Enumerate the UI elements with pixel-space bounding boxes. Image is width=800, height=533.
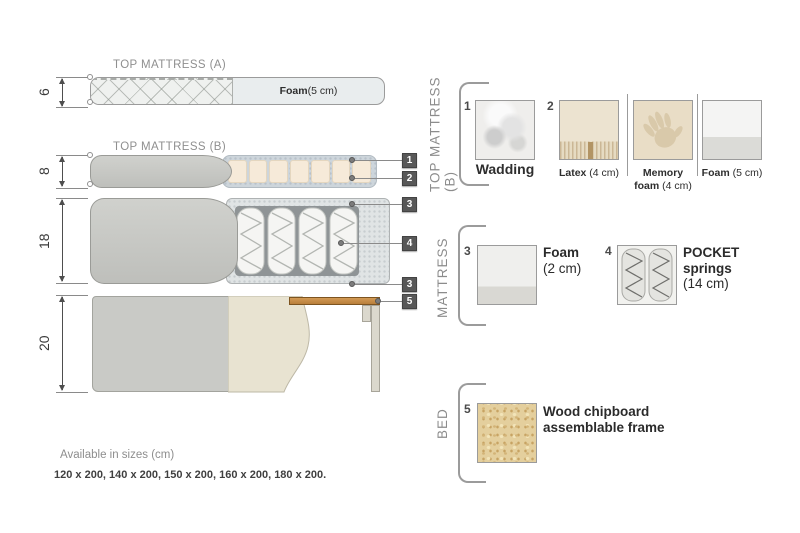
top-mattress-b-title: TOP MATTRESS (B) <box>113 141 226 153</box>
available-sizes-list: 120 x 200, 140 x 200, 150 x 200, 160 x 2… <box>54 469 326 481</box>
leader-line-3b <box>355 284 402 285</box>
mattress-construction-diagram: 6 8 18 20 TOP MATTRESS (A) Foam (5 cm) T… <box>0 0 800 533</box>
leader-line-4 <box>344 243 402 244</box>
latex-block <box>311 160 330 183</box>
pocket-springs-label: POCKET springs (14 cm) <box>683 245 739 292</box>
leader-line-2 <box>355 178 402 179</box>
corner-pin <box>87 99 93 105</box>
wood-chipboard-label: Wood chipboard assemblable frame <box>543 404 665 435</box>
leader-line-3 <box>355 204 402 205</box>
item-number-4: 4 <box>605 244 612 258</box>
item-number-3: 3 <box>464 244 471 258</box>
top-mattress-b-cover <box>90 155 232 188</box>
panel-section-label-bed: BED <box>434 394 451 454</box>
panel-section-label-top-mattress-b: TOP MATTRESS (B) <box>434 64 451 192</box>
foam-2cm-swatch <box>477 245 537 305</box>
latex-block <box>352 160 371 183</box>
handprint-graphic <box>634 101 692 159</box>
bed-frame-leg <box>371 305 380 392</box>
latex-swatch <box>559 100 619 160</box>
top-mattress-a-crosssection: Foam (5 cm) <box>90 77 385 105</box>
top-mattress-a-title: TOP MATTRESS (A) <box>113 59 226 71</box>
callout-badge-3: 3 <box>402 197 417 212</box>
leader-line-1 <box>355 160 402 161</box>
latex-block <box>269 160 288 183</box>
bed-skirt-fabric <box>228 296 312 393</box>
foam-2cm-label: Foam (2 cm) <box>543 245 581 276</box>
callout-badge-5: 5 <box>402 294 417 309</box>
mattress-cover <box>90 198 238 284</box>
dimension-arrow <box>62 157 63 186</box>
wood-chipboard-swatch <box>477 403 537 463</box>
dimension-tick <box>56 392 88 393</box>
wood-slat <box>289 297 380 305</box>
callout-badge-1: 1 <box>402 153 417 168</box>
panel-section-label-mattress: MATTRESS <box>434 230 451 325</box>
dimension-tick <box>56 107 88 108</box>
dimension-arrow <box>62 297 63 390</box>
leader-line-5 <box>381 301 402 302</box>
pocket-springs-swatch <box>617 245 677 305</box>
foam-5cm-swatch <box>702 100 762 160</box>
bed-frame-notch <box>362 305 371 322</box>
dimension-value: 8 <box>36 157 52 186</box>
dimension-value: 18 <box>36 226 52 256</box>
item-number-1: 1 <box>464 99 471 113</box>
memory-foam-swatch <box>633 100 693 160</box>
available-sizes-heading: Available in sizes (cm) <box>60 449 174 461</box>
item-number-5: 5 <box>464 402 471 416</box>
dimension-arrow <box>62 79 63 106</box>
callout-badge-3b: 3 <box>402 277 417 292</box>
pocket-springs-pair-graphic <box>618 246 676 304</box>
latex-block <box>290 160 309 183</box>
dimension-tick <box>56 283 88 284</box>
dimension-tick <box>56 188 88 189</box>
panel-divider <box>697 94 698 176</box>
corner-pin <box>87 152 93 158</box>
corner-pin <box>87 181 93 187</box>
callout-badge-2: 2 <box>402 171 417 186</box>
latex-block <box>332 160 351 183</box>
wadding-swatch <box>475 100 535 160</box>
dimension-value: 20 <box>36 329 52 358</box>
callout-badge-4: 4 <box>402 236 417 251</box>
foam-layer-label: Foam (5 cm) <box>233 78 384 104</box>
corner-pin <box>87 74 93 80</box>
latex-block <box>249 160 268 183</box>
dimension-arrow <box>62 200 63 281</box>
panel-divider <box>627 94 628 176</box>
quilted-cover <box>91 78 233 104</box>
bed-base-cover <box>92 296 229 392</box>
item-number-2: 2 <box>547 99 554 113</box>
dimension-value: 6 <box>36 79 52 106</box>
foam-5cm-label: Foam (5 cm) <box>677 167 787 180</box>
